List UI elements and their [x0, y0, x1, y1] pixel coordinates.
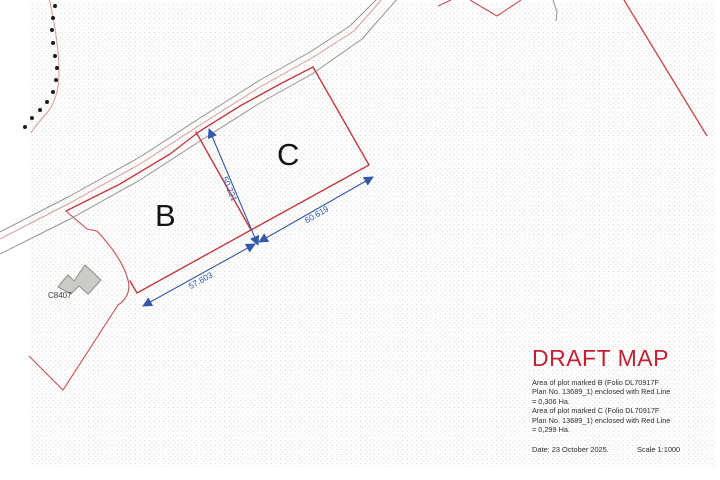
draft-map-title: DRAFT MAP	[532, 345, 669, 371]
scale-label: Scale 1:1000	[637, 445, 680, 454]
survey-dot	[50, 28, 54, 32]
building-label: C8407	[48, 291, 72, 300]
area-note-line-3: = 0,306 Ha.	[532, 397, 570, 406]
survey-dot	[51, 90, 55, 94]
survey-dot	[51, 16, 55, 20]
area-note-line-1: Area of plot marked B (Folio DL70917F	[532, 378, 659, 387]
area-note-line-6: = 0,299 Ha.	[532, 425, 570, 434]
dimension-label-bc-divide: 50.221	[220, 175, 239, 203]
dimension-label-c-bottom: 60.619	[303, 203, 331, 225]
survey-dot	[53, 54, 57, 58]
date-label: Date: 23 October 2025.	[532, 445, 609, 454]
survey-dot	[23, 125, 27, 129]
track-curve	[29, 211, 129, 390]
corner-red-line-small	[438, 0, 451, 6]
draft-map-canvas: C8407 50.221 57.603 60.619 B C DRAFT MAP…	[0, 0, 720, 480]
right-red-boundary-line	[624, 0, 707, 136]
boundary-curve-topleft	[31, 0, 59, 133]
area-note-line-2: Plan No. 13689_1) enclosed with Red Line	[532, 387, 670, 396]
plot-b-label: B	[155, 198, 176, 233]
survey-dot	[55, 66, 59, 70]
survey-dot	[53, 4, 57, 8]
survey-dot	[38, 108, 42, 112]
survey-dot	[51, 41, 55, 45]
road-inner-line	[0, 0, 398, 255]
area-note-line-4: Area of plot marked C (Folio DL70917F	[532, 406, 660, 415]
info-panel: DRAFT MAP Area of plot marked B (Folio D…	[532, 345, 680, 454]
survey-dot	[30, 116, 34, 120]
plot-c-label: C	[277, 137, 299, 172]
survey-dot	[54, 78, 58, 82]
plot-road-edge-boundary	[66, 67, 313, 211]
survey-dot	[45, 100, 49, 104]
road-outer-line	[0, 0, 378, 233]
building-c8407	[58, 265, 101, 294]
plot-c-boundary	[251, 67, 369, 230]
dimension-label-b-bottom: 57.603	[187, 270, 215, 291]
area-note-line-5: Plan No. 13689_1) enclosed with Red Line	[532, 416, 670, 425]
boundary-tick-gray	[553, 0, 557, 21]
corner-red-vee	[470, 0, 521, 16]
